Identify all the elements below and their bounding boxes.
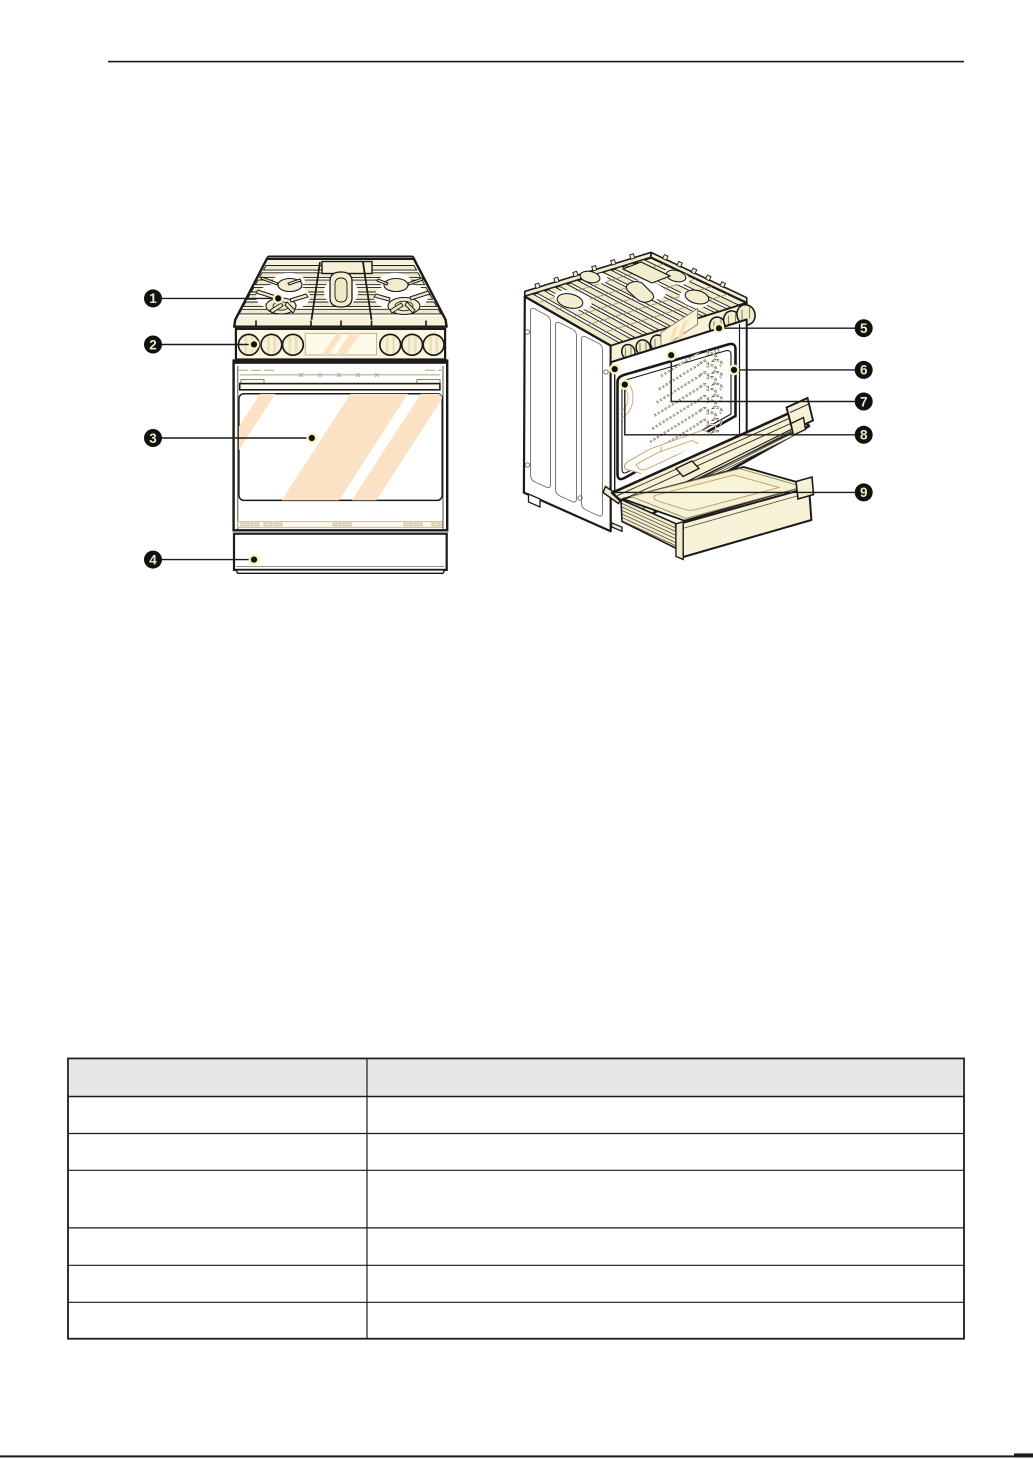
svg-text:1: 1 — [149, 291, 157, 306]
svg-text:2: 2 — [149, 337, 157, 352]
svg-text:3: 3 — [149, 431, 157, 446]
svg-text:7: 7 — [860, 394, 868, 409]
svg-text:5: 5 — [860, 321, 868, 336]
svg-text:9: 9 — [860, 485, 868, 500]
svg-text:6: 6 — [860, 363, 868, 378]
svg-text:8: 8 — [860, 428, 868, 443]
svg-text:4: 4 — [149, 552, 157, 567]
